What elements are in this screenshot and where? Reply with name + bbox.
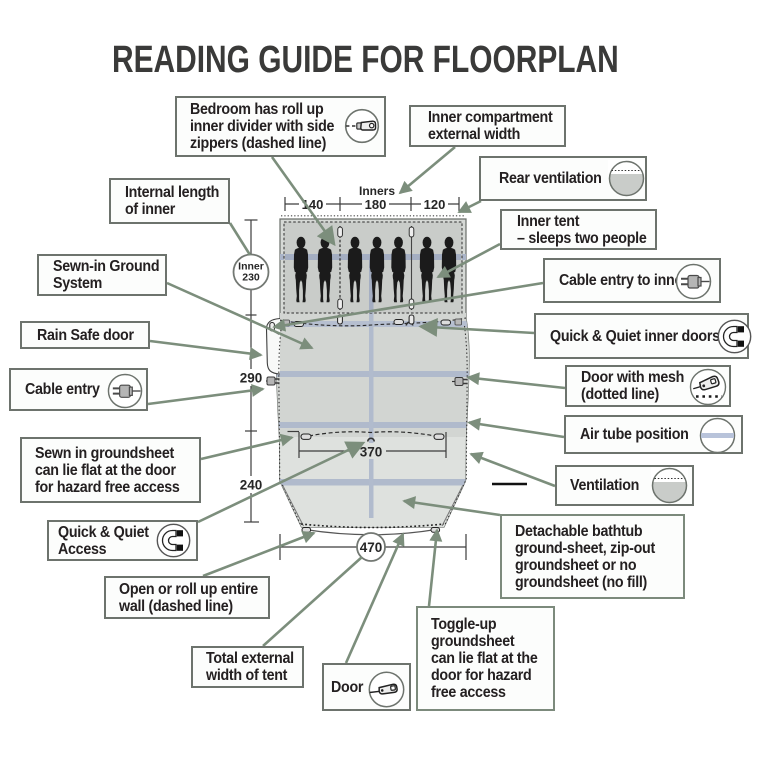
svg-text:370: 370 [360,445,383,460]
svg-text:240: 240 [240,478,263,493]
svg-text:Inners: Inners [359,184,395,198]
svg-text:470: 470 [360,540,383,555]
svg-text:230: 230 [242,272,260,284]
svg-text:290: 290 [240,371,263,386]
svg-text:180: 180 [365,197,387,212]
svg-text:120: 120 [424,197,446,212]
